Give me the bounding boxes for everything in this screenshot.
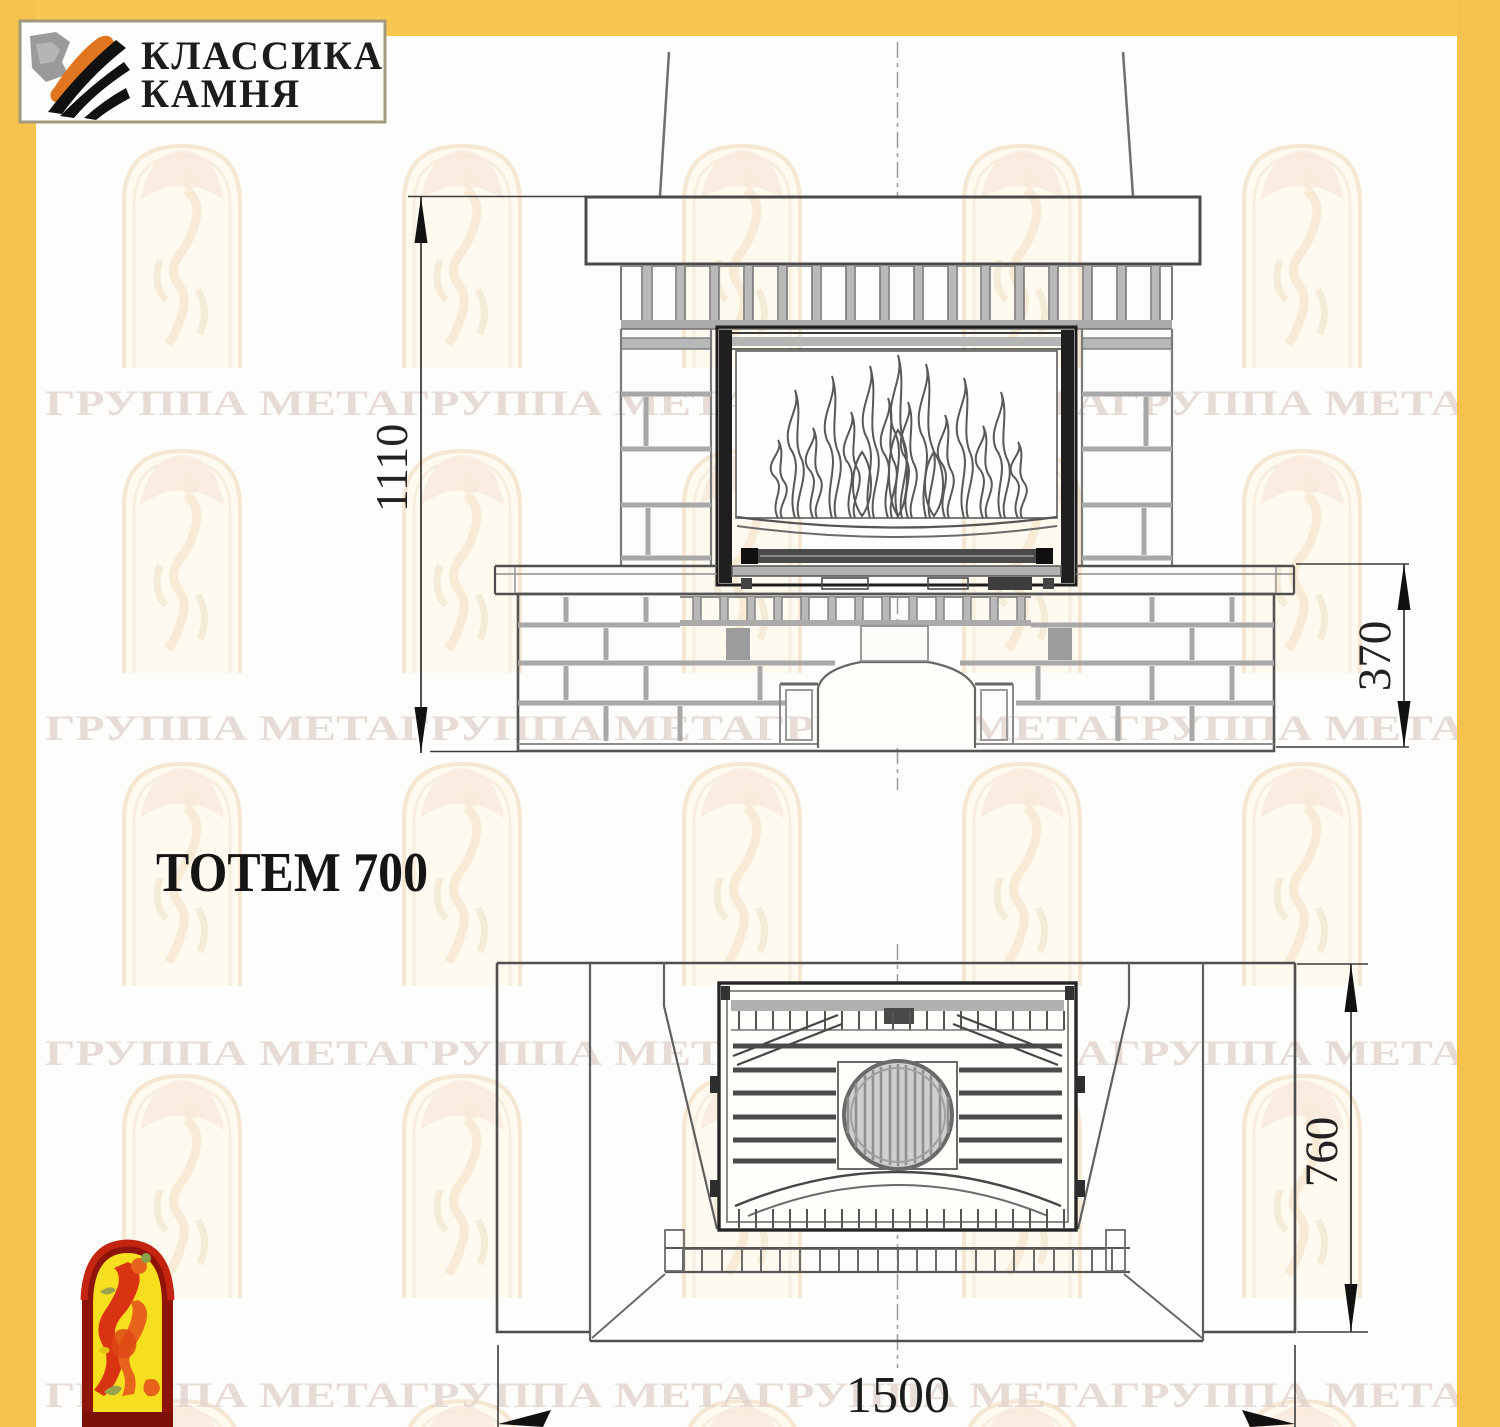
svg-text:ГРУППА МЕТАГРУППА МЕТАГРУППА М: ГРУППА МЕТАГРУППА МЕТАГРУППА МЕТАГРУППА … — [45, 1375, 1465, 1415]
svg-text:370: 370 — [1349, 621, 1401, 692]
svg-text:1110: 1110 — [366, 424, 417, 513]
svg-text:1500: 1500 — [846, 1367, 950, 1424]
svg-text:ТОТЕМ 700: ТОТЕМ 700 — [156, 842, 428, 904]
svg-text:760: 760 — [1296, 1117, 1348, 1188]
svg-text:КАМНЯ: КАМНЯ — [141, 71, 301, 116]
svg-text:ГРУППА МЕТАГРУППА МЕТАГРУППА М: ГРУППА МЕТАГРУППА МЕТАГРУППА МЕТАГРУППА … — [45, 708, 1465, 748]
